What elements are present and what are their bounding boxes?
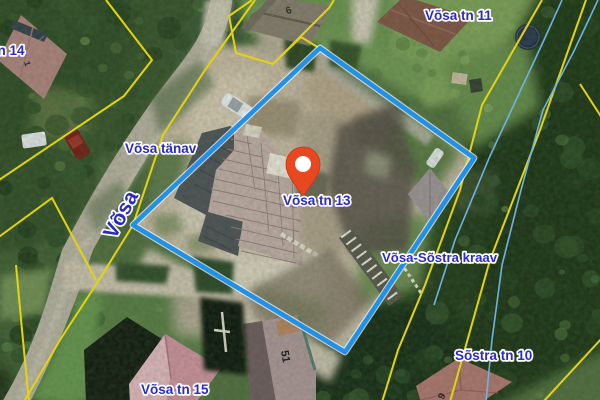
svg-text:Võsa tn 14: Võsa tn 14 bbox=[0, 43, 25, 58]
svg-text:Võsa tn 11: Võsa tn 11 bbox=[425, 8, 492, 23]
svg-text:Võsa tänav: Võsa tänav bbox=[125, 141, 197, 156]
svg-text:Võsa tn 15: Võsa tn 15 bbox=[141, 382, 209, 397]
svg-text:Võsa-Sõstra kraav: Võsa-Sõstra kraav bbox=[382, 250, 498, 265]
svg-text:Võsa tn 13: Võsa tn 13 bbox=[283, 193, 351, 208]
svg-text:Sõstra tn 10: Sõstra tn 10 bbox=[455, 348, 532, 363]
